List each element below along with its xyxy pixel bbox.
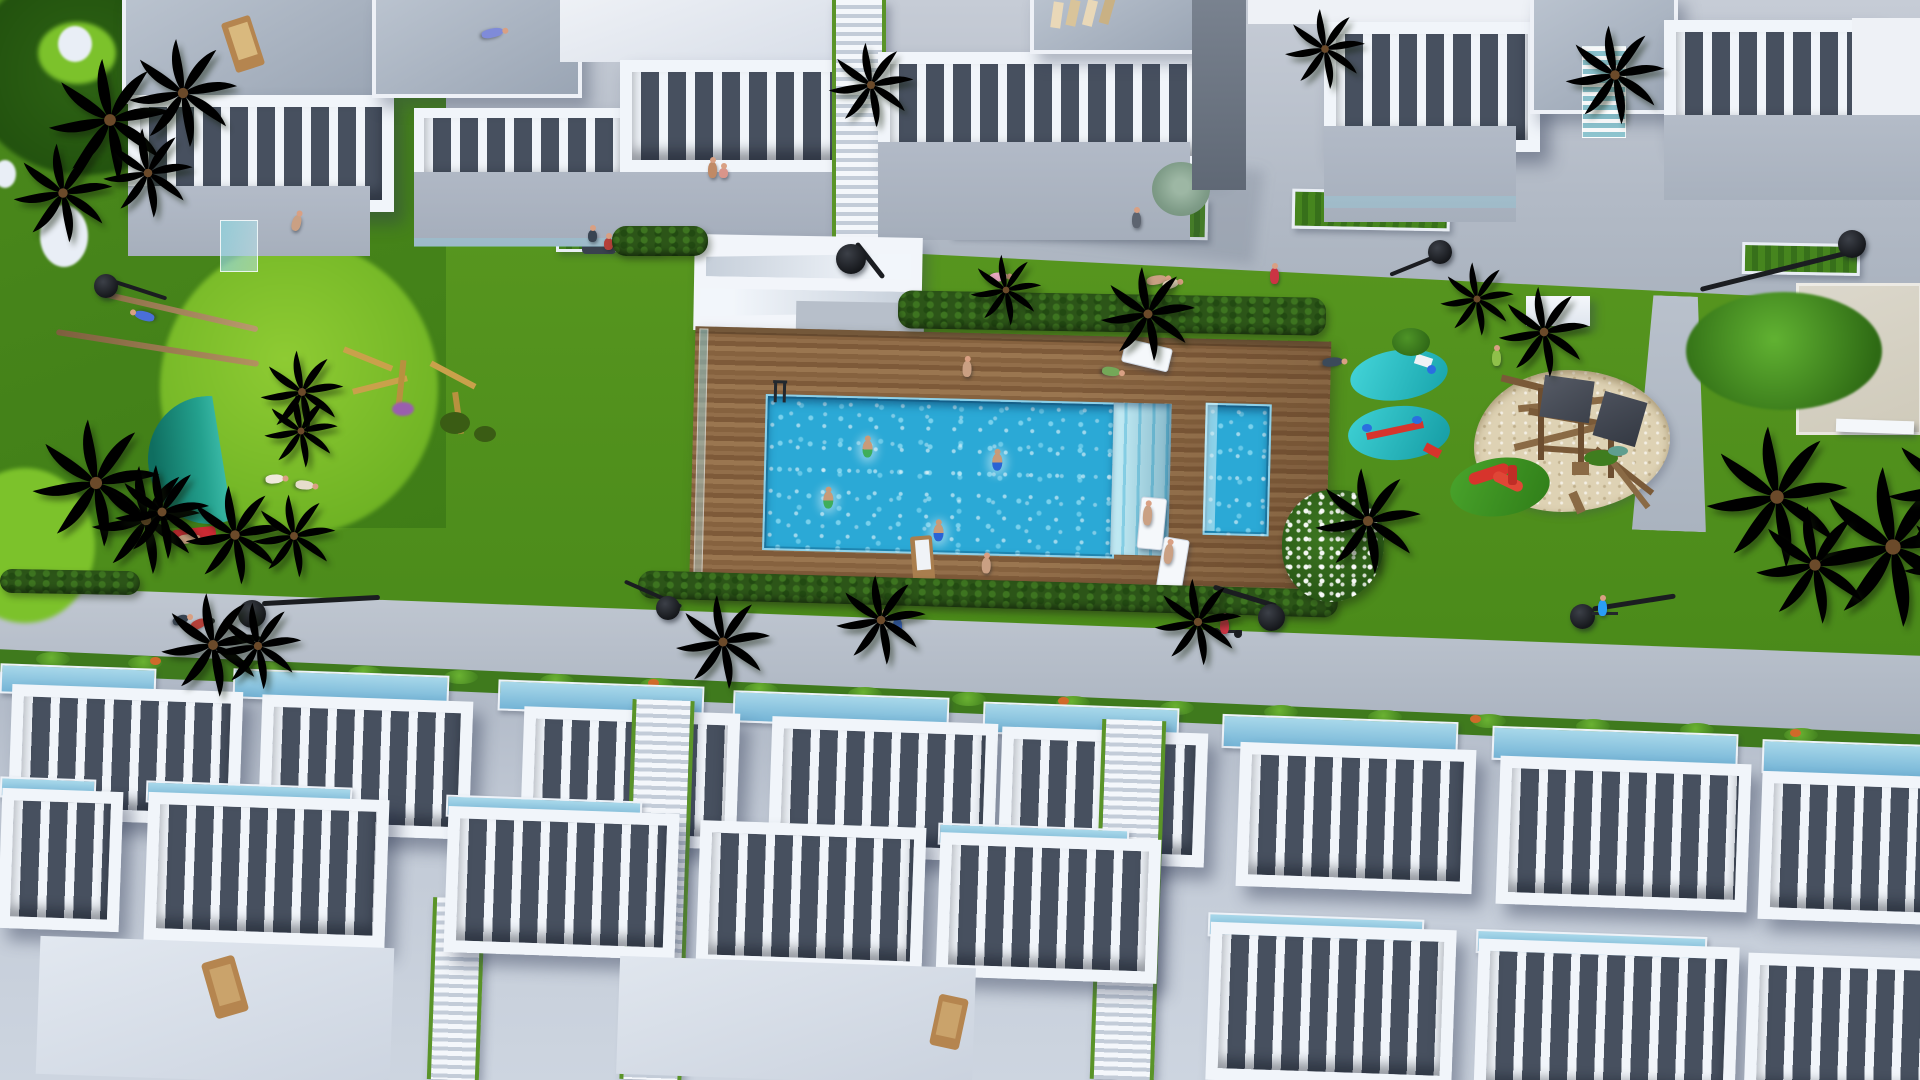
patio xyxy=(1664,115,1920,200)
shrub xyxy=(474,426,496,442)
pool-ladder xyxy=(773,380,787,383)
lamp-head xyxy=(1570,604,1595,629)
pergola xyxy=(1743,953,1920,1080)
dark-wall xyxy=(1192,0,1246,190)
pergola xyxy=(444,806,680,960)
bushes-behind-ramp xyxy=(612,226,708,256)
pergola xyxy=(1757,771,1920,925)
palm-tree xyxy=(223,353,301,431)
palm-tree xyxy=(1256,409,1368,521)
palm-tree xyxy=(623,542,723,642)
person-child xyxy=(719,168,728,178)
swimmer xyxy=(933,524,943,541)
swimmer xyxy=(862,440,872,457)
grass-tuft xyxy=(952,692,986,706)
person-on-deck xyxy=(982,557,991,573)
seesaw-seat xyxy=(1412,416,1422,424)
lamp-head xyxy=(1258,604,1285,631)
flat-roof xyxy=(616,956,976,1080)
swimmer xyxy=(992,454,1002,471)
person-walking xyxy=(1492,350,1501,366)
pergola xyxy=(936,832,1162,984)
pergola xyxy=(143,792,389,948)
person-on-deck xyxy=(962,361,971,377)
pool-ladder xyxy=(774,382,777,402)
pergola xyxy=(696,820,927,974)
palm-tree xyxy=(1106,530,1198,622)
pergola xyxy=(1236,742,1477,894)
person-walking xyxy=(1270,268,1279,284)
shrub xyxy=(440,412,470,434)
palm-tree xyxy=(1048,214,1148,314)
glass-panel xyxy=(220,220,258,272)
pool-ladder xyxy=(783,382,786,402)
flower-patch-purple xyxy=(392,402,414,416)
lamp-head xyxy=(94,274,118,298)
roof-terrace xyxy=(372,0,582,98)
lamp-head xyxy=(836,244,866,274)
bicycle-wheel xyxy=(1234,630,1242,638)
tower-roof xyxy=(1539,375,1594,424)
cyclist xyxy=(1598,600,1607,616)
planter-flower xyxy=(1790,729,1801,737)
palm-tree xyxy=(931,215,1006,290)
palm-tree xyxy=(1835,433,1920,563)
person-seated xyxy=(588,230,597,242)
pergola xyxy=(0,788,123,932)
round-bush xyxy=(1392,328,1430,356)
pebbles xyxy=(1608,446,1628,456)
palm-tree xyxy=(1448,236,1544,332)
palm-tree xyxy=(166,554,258,646)
lamp-head xyxy=(1838,230,1866,258)
wood-box xyxy=(1572,462,1589,475)
palm-tree xyxy=(786,525,881,620)
red-slide xyxy=(1508,465,1517,485)
swimmer xyxy=(823,491,833,508)
planter-flower xyxy=(150,657,161,665)
palm-tree xyxy=(1510,0,1615,75)
glass-balustrade xyxy=(1324,196,1516,208)
pergola xyxy=(1495,756,1751,913)
palm-tree xyxy=(206,448,294,536)
palm-tree xyxy=(53,78,148,173)
aerial-render-scene xyxy=(0,0,1920,1080)
play-toy-blue xyxy=(1427,365,1436,374)
palm-tree xyxy=(781,0,871,85)
person xyxy=(708,162,717,178)
lamp-head xyxy=(1428,240,1452,264)
palm-tree xyxy=(1240,0,1325,49)
lounger-pad xyxy=(915,539,931,570)
palm-tree xyxy=(1690,440,1815,565)
pergola xyxy=(1205,922,1456,1080)
pergola xyxy=(1473,938,1739,1080)
planter-flower xyxy=(1470,715,1481,723)
